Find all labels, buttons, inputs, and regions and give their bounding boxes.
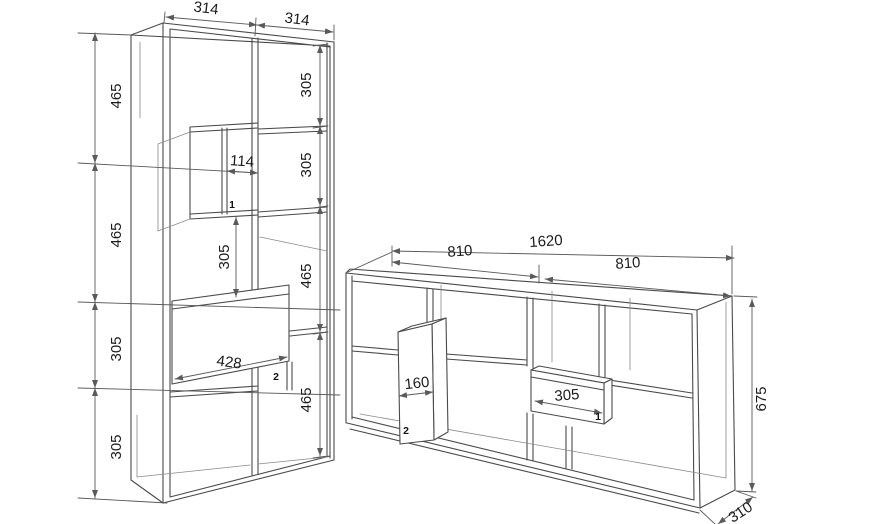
part-label-sideboard-drawer: 1 <box>595 411 601 423</box>
sideboard-niche-side <box>432 318 448 440</box>
dim-tall-right-height-3: 465 <box>298 263 315 288</box>
sideboard-drawer-side <box>604 379 612 424</box>
dim-tall-niche-width: 114 <box>230 152 255 171</box>
dim-tall-left-height-3: 305 <box>108 336 125 361</box>
dim-tall-right-height-2: 305 <box>298 152 315 177</box>
dim-sideboard-half-width-2: 810 <box>615 254 641 273</box>
dim-tall-top-width-1: 314 <box>193 0 220 18</box>
dim-sideboard-niche-width: 160 <box>404 374 431 394</box>
dim-tall-left-height-1: 465 <box>108 83 125 108</box>
dim-sideboard-total-width: 1620 <box>529 232 563 251</box>
furniture-dimension-drawing: 314 314 465 465 305 305 305 305 465 465 … <box>0 0 870 524</box>
dim-tall-drawer-width: 428 <box>215 352 242 372</box>
dim-sideboard-drawer-width: 305 <box>554 386 580 405</box>
dim-sideboard-half-width-1: 810 <box>447 242 473 261</box>
technical-drawing-page: 314 314 465 465 305 305 305 305 465 465 … <box>0 0 870 524</box>
part-label-sideboard-niche: 2 <box>403 425 409 437</box>
dim-tall-top-width-2: 314 <box>284 10 311 30</box>
dim-tall-center-height: 305 <box>216 244 233 269</box>
dim-tall-left-height-4: 305 <box>108 434 125 459</box>
dim-tall-left-height-2: 465 <box>108 222 125 247</box>
part-label-tall-niche: 1 <box>229 199 235 211</box>
part-label-tall-drawer: 2 <box>273 371 279 383</box>
dim-tall-right-height-4: 465 <box>298 387 315 412</box>
dim-sideboard-depth: 310 <box>726 499 756 524</box>
dimension-annotations: 314 314 465 465 305 305 305 305 465 465 … <box>78 0 770 524</box>
dim-sideboard-height: 675 <box>753 386 770 411</box>
dim-tall-right-height-1: 305 <box>298 72 315 97</box>
